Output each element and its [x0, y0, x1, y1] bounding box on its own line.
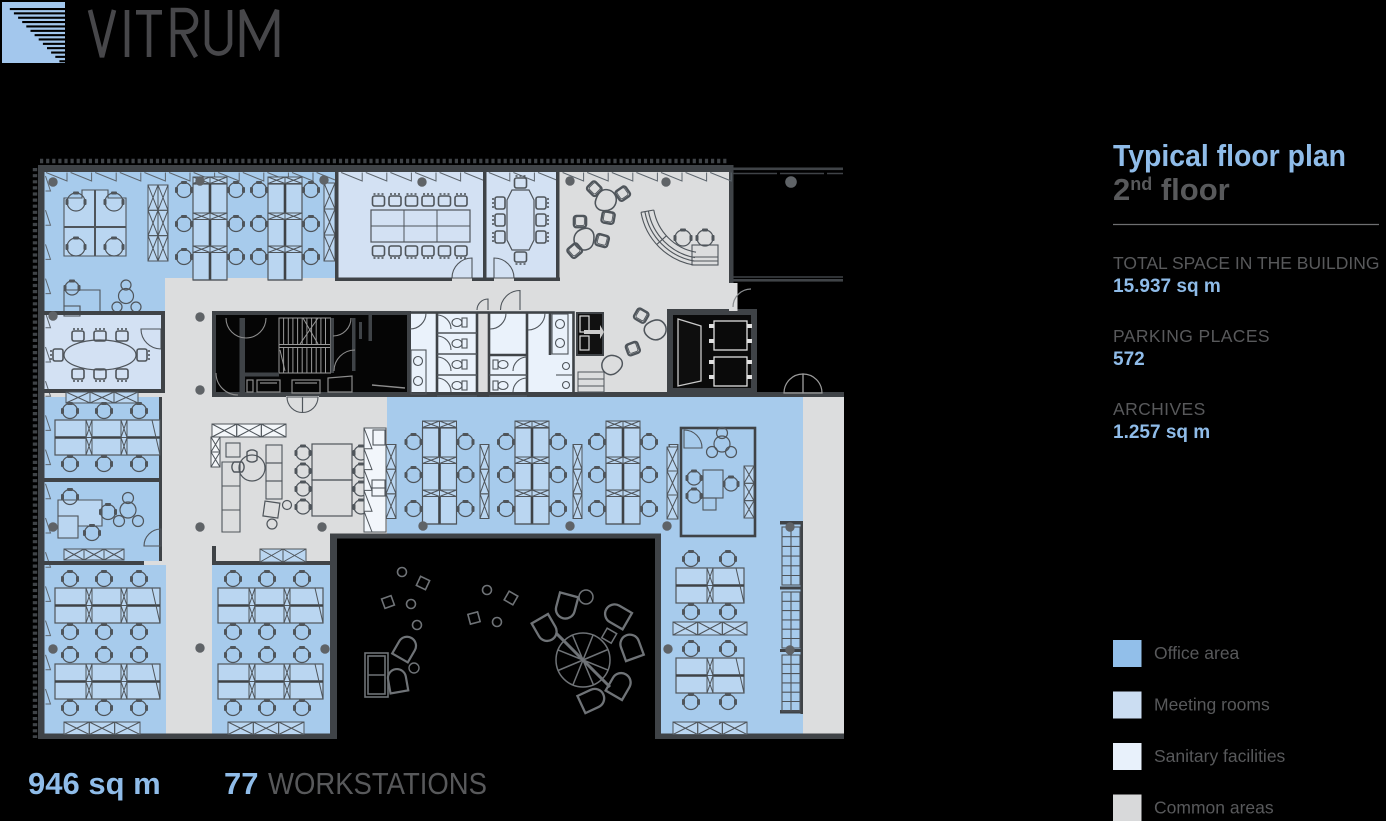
- svg-text:ARCHIVES: ARCHIVES: [1113, 399, 1206, 419]
- svg-text:572: 572: [1113, 349, 1145, 370]
- svg-text:Meeting rooms: Meeting rooms: [1154, 695, 1270, 715]
- svg-text:77: 77: [224, 766, 258, 801]
- svg-text:1.257 sq m: 1.257 sq m: [1113, 422, 1210, 443]
- svg-text:946 sq m: 946 sq m: [28, 766, 161, 801]
- svg-text:Office area: Office area: [1154, 643, 1240, 663]
- svg-text:Sanitary facilities: Sanitary facilities: [1154, 746, 1286, 766]
- svg-text:WORKSTATIONS: WORKSTATIONS: [268, 766, 487, 801]
- svg-text:PARKING PLACES: PARKING PLACES: [1113, 326, 1270, 346]
- svg-text:15.937 sq m: 15.937 sq m: [1113, 276, 1221, 297]
- svg-text:Typical floor plan: Typical floor plan: [1113, 138, 1346, 173]
- svg-text:TOTAL SPACE IN THE BUILDING: TOTAL SPACE IN THE BUILDING: [1113, 253, 1379, 273]
- svg-text:Common areas: Common areas: [1154, 798, 1274, 818]
